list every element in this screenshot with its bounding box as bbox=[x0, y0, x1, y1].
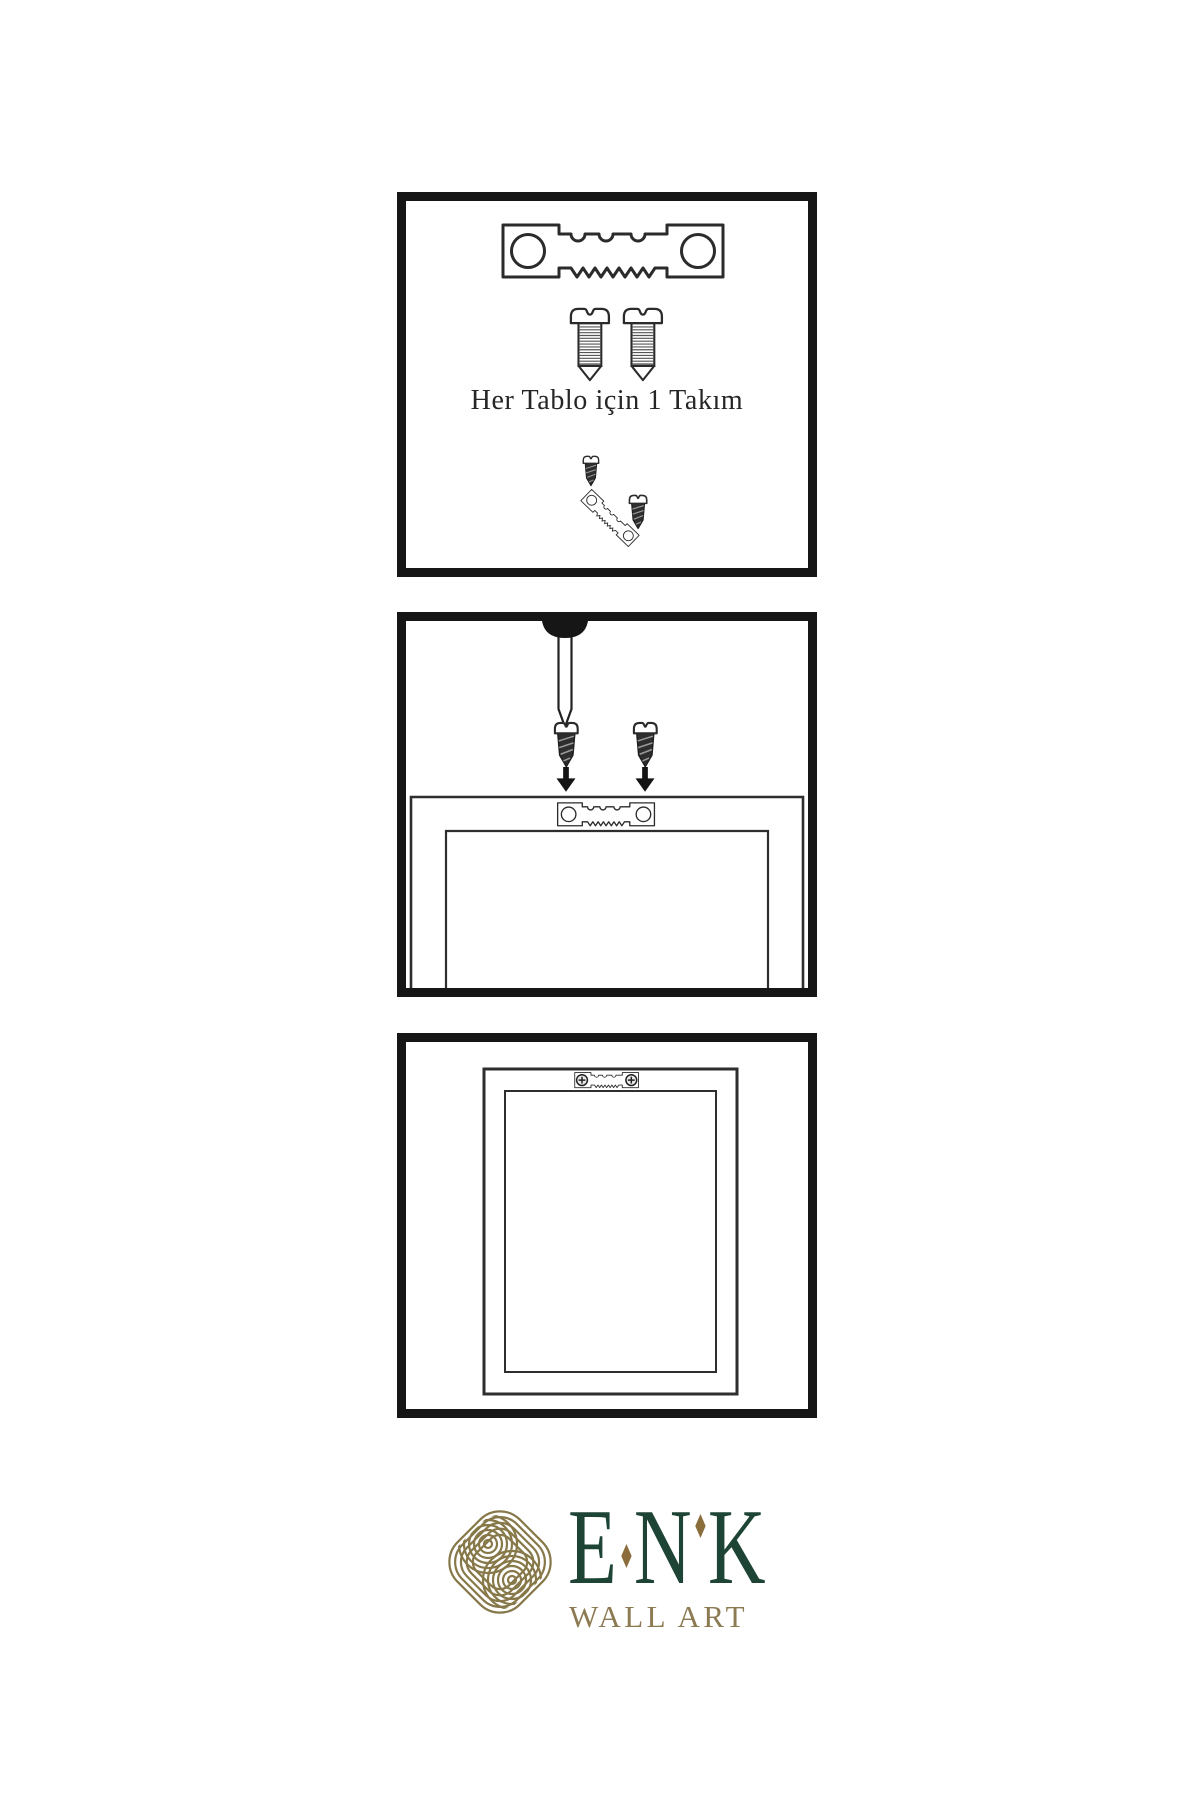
picture-frame-inner bbox=[505, 1091, 716, 1372]
wall-nail-icon bbox=[542, 621, 588, 727]
phillips-screw-head-icon bbox=[577, 1075, 588, 1086]
brand-letter: E bbox=[568, 1494, 618, 1602]
small-screw-icon bbox=[629, 495, 646, 528]
diamond-accent-icon bbox=[621, 1544, 631, 1568]
step-1-hardware-kit-panel: Her Tablo için 1 Takım bbox=[397, 192, 817, 577]
brand-letter: N bbox=[634, 1494, 692, 1602]
down-arrow-icon bbox=[557, 767, 576, 792]
step-3-hanging-panel bbox=[397, 1033, 817, 1418]
step-2-mounting-panel bbox=[397, 612, 817, 997]
frame-back-outer-edge bbox=[411, 797, 803, 988]
kit-caption: Her Tablo için 1 Takım bbox=[406, 385, 808, 417]
down-arrow-icon bbox=[636, 767, 655, 792]
small-screw-icon bbox=[583, 456, 598, 485]
diamond-accent-icon bbox=[695, 1514, 705, 1538]
mounting-illustration bbox=[406, 621, 808, 988]
knot-logo-icon bbox=[436, 1492, 564, 1632]
brand-wordmark: E N K bbox=[568, 1494, 766, 1606]
screw-icon bbox=[555, 723, 578, 767]
frame-back-inner-edge bbox=[446, 831, 768, 988]
phillips-screw-head-icon bbox=[626, 1075, 637, 1086]
screw-icon bbox=[571, 309, 609, 380]
sawtooth-hanger-icon bbox=[503, 225, 723, 277]
screw-icon bbox=[634, 723, 657, 767]
sawtooth-hanger-icon bbox=[558, 803, 655, 826]
installed-sawtooth-hanger-icon bbox=[575, 1073, 639, 1088]
screw-icon bbox=[624, 309, 662, 380]
brand-subtitle: WALL ART bbox=[569, 1599, 748, 1635]
brand-letter: K bbox=[708, 1494, 766, 1602]
hanging-illustration bbox=[406, 1042, 808, 1409]
